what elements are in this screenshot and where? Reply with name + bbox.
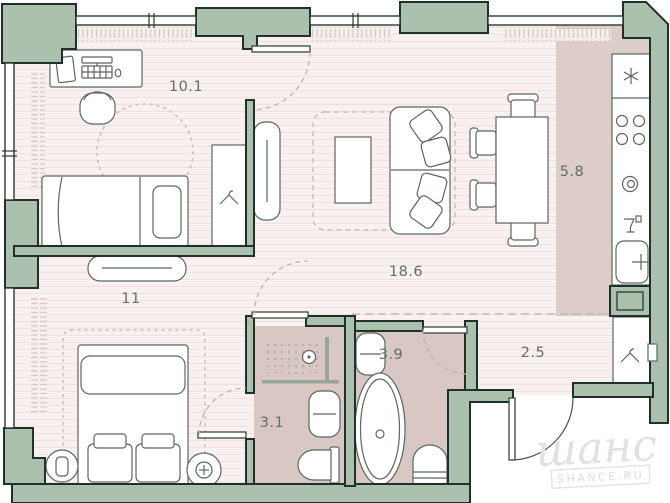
- double-bed: [78, 345, 188, 486]
- ensuite-door: [252, 312, 308, 318]
- ensuite-sink: [309, 391, 340, 437]
- nightstand-left: [46, 450, 78, 482]
- blanket-fold: [81, 356, 185, 394]
- office-bed: [42, 176, 188, 248]
- bedroom-bench: [88, 256, 186, 281]
- bathroom-area-label: 3.9: [379, 347, 404, 363]
- shower: [262, 337, 339, 384]
- bathtub: [355, 373, 405, 485]
- bath-toilet: [413, 445, 447, 486]
- kitchen-area-label: 5.8: [560, 164, 585, 180]
- window: [5, 63, 14, 200]
- sofa: [390, 107, 452, 234]
- window: [488, 16, 623, 25]
- hallway-area-label: 2.5: [521, 345, 546, 361]
- office-area-label: 10.1: [169, 79, 203, 95]
- bedroom-area-label: 11: [121, 291, 140, 307]
- dining-table: [496, 117, 548, 223]
- office-wardrobe: [212, 145, 246, 247]
- office-desk: [50, 50, 142, 87]
- wardrobe-niche: [648, 344, 657, 361]
- shower-glass: [262, 380, 339, 384]
- bedroom-door: [198, 432, 246, 438]
- living-area-label: 18.6: [389, 264, 423, 280]
- vent-shaft: [610, 286, 650, 316]
- coffee-table: [335, 137, 371, 203]
- floor-plan: 10.1 18.6 5.8 11 3.1 3.9 2.5 шанс SHANCE…: [0, 0, 670, 503]
- office-door: [252, 46, 310, 52]
- nightstand-right: [187, 453, 221, 487]
- monitor: [82, 57, 112, 63]
- window: [5, 288, 14, 428]
- bathroom-door: [423, 327, 467, 333]
- kitchen-area: [612, 54, 650, 285]
- keyboard: [82, 66, 112, 78]
- pillow: [153, 186, 181, 238]
- washer-icon: [616, 241, 650, 283]
- mouse: [115, 69, 121, 77]
- window: [310, 16, 400, 25]
- office-chair: [80, 92, 115, 124]
- window: [76, 16, 196, 25]
- tv-cabinet: [254, 122, 280, 220]
- ensuite-area-label: 3.1: [260, 415, 285, 431]
